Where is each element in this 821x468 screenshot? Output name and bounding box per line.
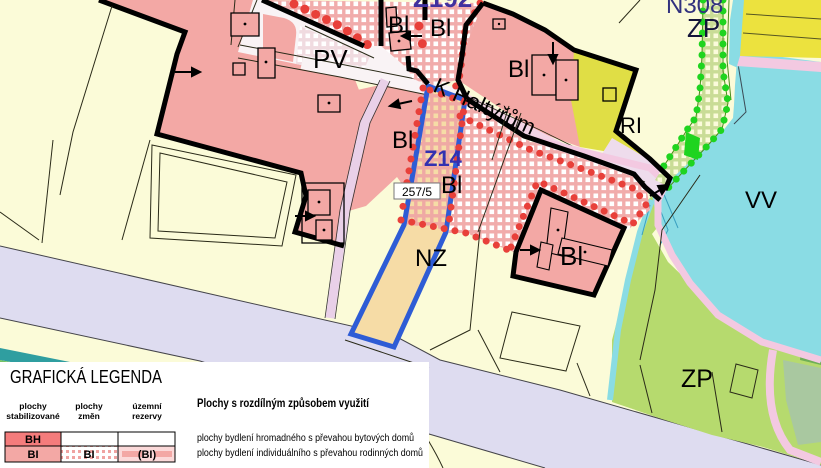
svg-text:územní: územní <box>132 401 162 411</box>
svg-text:BI: BI <box>84 449 95 461</box>
svg-text:Plochy s rozdílným způsobem vy: Plochy s rozdílným způsobem využití <box>197 398 370 410</box>
svg-text:N308: N308 <box>666 0 723 19</box>
svg-text:Bl: Bl <box>388 12 409 39</box>
svg-text:plochy: plochy <box>75 401 103 411</box>
svg-text:Bl: Bl <box>392 127 413 154</box>
svg-text:rezervy: rezervy <box>132 411 162 421</box>
svg-text:BI: BI <box>28 449 39 461</box>
svg-text:BH: BH <box>25 434 41 446</box>
svg-text:Bl: Bl <box>430 15 451 42</box>
svg-text:plochy bydlení hromadného s př: plochy bydlení hromadného s převahou byt… <box>197 432 414 444</box>
svg-text:Bl: Bl <box>441 172 462 199</box>
svg-text:ZP: ZP <box>681 365 713 393</box>
svg-text:plochy: plochy <box>19 401 47 411</box>
svg-text:Z14: Z14 <box>424 146 463 171</box>
svg-text:RI: RI <box>620 113 642 138</box>
svg-text:257/5: 257/5 <box>402 185 432 199</box>
svg-text:Z192: Z192 <box>413 0 472 13</box>
svg-text:Bl: Bl <box>508 56 529 83</box>
svg-text:(BI): (BI) <box>138 449 157 461</box>
svg-text:GRAFICKÁ LEGENDA: GRAFICKÁ LEGENDA <box>10 367 162 387</box>
svg-text:PV: PV <box>313 44 348 74</box>
svg-text:Bl: Bl <box>560 241 583 271</box>
svg-text:VV: VV <box>745 187 777 214</box>
svg-text:plochy bydlení individuálního: plochy bydlení individuálního s převahou… <box>197 447 423 459</box>
svg-text:NZ: NZ <box>415 245 447 272</box>
svg-text:změn: změn <box>78 411 100 421</box>
svg-text:stabilizované: stabilizované <box>6 411 60 421</box>
